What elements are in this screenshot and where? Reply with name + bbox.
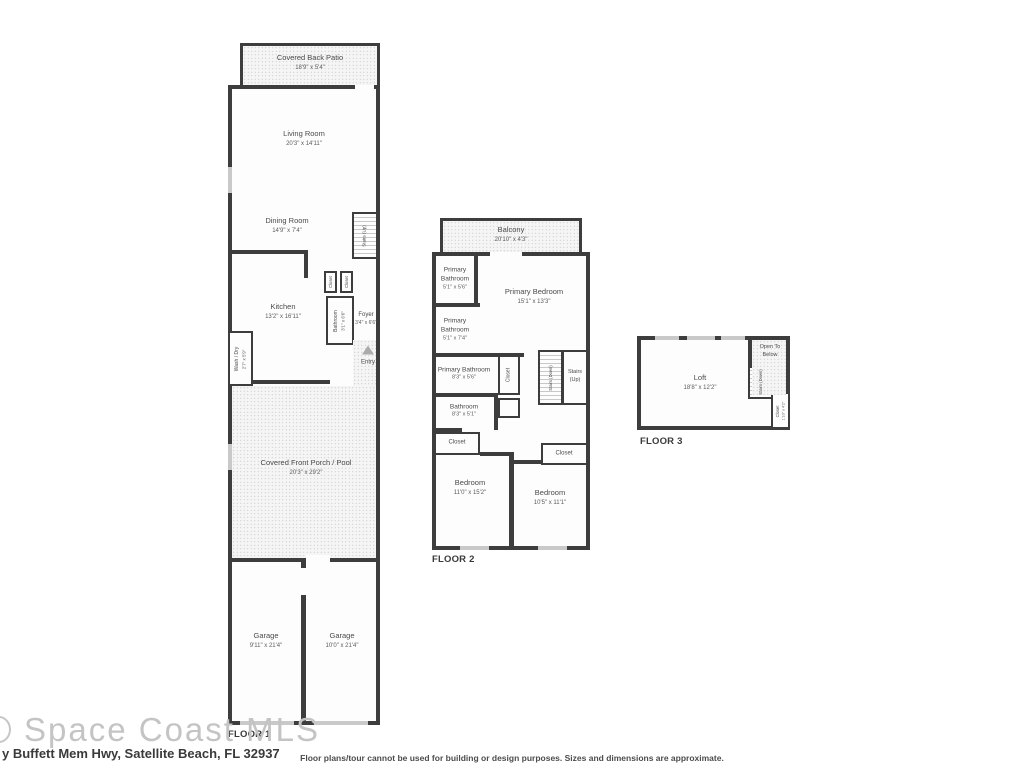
room-dims: 10'0" x 21'4"	[326, 642, 359, 651]
room-name: Garage	[250, 631, 282, 642]
room-name: Garage	[326, 631, 359, 642]
stairs-label: Stairs (Down)	[547, 365, 553, 390]
room-label-bedroom-left: Bedroom 11'0" x 15'2"	[454, 478, 486, 498]
closet: Closet	[498, 355, 520, 395]
room-dims: 14'9" x 7'4"	[265, 227, 308, 236]
room-dims: 13'2" x 16'11"	[265, 313, 301, 322]
room-label-covered-back-patio: Covered Back Patio 18'9" x 5'4"	[277, 53, 343, 73]
room-dims: 15'1" x 13'3"	[505, 298, 563, 307]
room-label-foyer: Foyer 3'4" x 6'6"	[355, 311, 377, 327]
room-label-primary-bathroom-a: Primary Bathroom 5'1" x 5'6"	[432, 266, 478, 293]
wall	[514, 460, 542, 464]
room-label-wash-dry: Wash / Dry 2'7" x 5'9"	[234, 346, 248, 371]
room-name: Loft	[684, 373, 717, 384]
door-opening	[306, 555, 330, 565]
room-dims: 8'3" x 5'1"	[450, 412, 478, 420]
garage-door-opening	[314, 721, 368, 725]
room-label-bathroom: Bathroom 8'3" x 5'1"	[450, 402, 478, 419]
room-label-primary-bathroom-c: Primary Bathroom 8'3" x 5'6"	[438, 365, 490, 382]
room-wash-dry: Wash / Dry 2'7" x 5'9"	[228, 331, 253, 386]
window-opening	[460, 546, 489, 550]
window-opening	[228, 444, 232, 470]
disclaimer-text: Floor plans/tour cannot be used for buil…	[0, 753, 1024, 763]
room-name: Bedroom	[534, 488, 566, 499]
entry-label: Entry	[361, 359, 375, 368]
room-name: Bathroom	[450, 402, 478, 411]
wall	[432, 353, 524, 357]
hall-nook	[498, 398, 520, 418]
floor2-tag: FLOOR 2	[432, 554, 475, 565]
closet-label: Closet	[343, 276, 349, 288]
room-name: Kitchen	[265, 302, 301, 313]
window-opening	[538, 546, 567, 550]
room-label-dining-room: Dining Room 14'9" x 7'4"	[265, 216, 308, 236]
room-name: Bedroom	[454, 478, 486, 489]
room-name: Primary Bathroom	[432, 317, 478, 336]
window-opening	[228, 167, 232, 193]
room-name: Primary Bedroom	[505, 287, 563, 298]
room-label-loft: Loft 18'8" x 12'2"	[684, 373, 717, 393]
room-dims: 11'0" x 15'2"	[454, 489, 486, 498]
room-label-bathroom: Bathroom 3'1" x 6'6"	[333, 310, 347, 332]
room-dims: 20'3" x 14'11"	[283, 140, 325, 149]
closet: Closet 1'10" x 4'2"	[771, 392, 790, 429]
wall	[432, 393, 498, 397]
room-dims: 3'4" x 6'6"	[355, 320, 377, 327]
window-opening	[687, 336, 715, 340]
room-dims: 20'3" x 29'2"	[261, 469, 352, 478]
wall	[509, 452, 514, 550]
room-name: Living Room	[283, 129, 325, 140]
closet-label: Closet	[448, 439, 465, 448]
room-name: Balcony	[495, 225, 528, 236]
room-label-primary-bedroom: Primary Bedroom 15'1" x 13'3"	[505, 287, 563, 307]
wall	[432, 303, 480, 307]
closet-label: Closet	[555, 450, 572, 459]
room-label-covered-front-porch: Covered Front Porch / Pool 20'3" x 29'2"	[261, 458, 352, 478]
room-dims: 18'8" x 12'2"	[684, 384, 717, 393]
wall	[304, 250, 308, 278]
stairs-label: Stairs (Down)	[757, 369, 763, 394]
wall	[748, 340, 752, 368]
closet: Closet	[324, 271, 337, 293]
window-opening	[721, 336, 745, 340]
door-opening	[301, 568, 306, 595]
stairs-label: Stairs (Up)	[362, 225, 369, 247]
room-dims: 5'1" x 5'6"	[432, 284, 478, 292]
window-opening	[655, 336, 679, 340]
room-label-kitchen: Kitchen 13'2" x 16'11"	[265, 302, 301, 322]
room-bathroom: Bathroom 3'1" x 6'6"	[326, 296, 354, 345]
room-label-living-room: Living Room 20'3" x 14'11"	[283, 129, 325, 149]
stairs-up: Stairs (Up)	[352, 212, 378, 259]
closet: Closet	[340, 271, 353, 293]
door-opening	[490, 252, 522, 256]
watermark-logo-fragment	[0, 716, 11, 743]
closet-label: Closet	[327, 276, 333, 288]
room-name: Covered Back Patio	[277, 53, 343, 64]
wall	[494, 393, 498, 430]
stairs-block: Stairs (Down) Stairs (Up)	[538, 350, 588, 405]
floor3-tag: FLOOR 3	[640, 436, 683, 447]
watermark-text: Space Coast MLS	[24, 711, 320, 749]
wall	[432, 428, 462, 432]
wall	[228, 250, 308, 254]
room-name: Foyer	[355, 311, 377, 320]
entry-arrow-icon	[362, 346, 374, 355]
room-label-balcony: Balcony 20'10" x 4'3"	[495, 225, 528, 245]
room-label-primary-bathroom-b: Primary Bathroom 5'1" x 7'4"	[432, 317, 478, 344]
stairs-down: Stairs (Down)	[540, 352, 561, 403]
room-name: Primary Bathroom	[438, 365, 490, 374]
room-name: Covered Front Porch / Pool	[261, 458, 352, 469]
room-name: Primary Bathroom	[432, 266, 478, 285]
room-label-garage-left: Garage 9'11" x 21'4"	[250, 631, 282, 651]
room-dims: 20'10" x 4'3"	[495, 236, 528, 245]
stairs-label: Stairs (Up)	[564, 369, 586, 385]
room-dims: 9'11" x 21'4"	[250, 642, 282, 651]
closet-label: Closet 1'10" x 4'2"	[775, 401, 787, 420]
room-label-bedroom-right: Bedroom 10'5" x 11'1"	[534, 488, 566, 508]
room-dims: 8'3" x 5'6"	[438, 375, 490, 383]
closet-label: Closet	[505, 368, 512, 382]
room-dims: 18'9" x 5'4"	[277, 64, 343, 73]
door-opening	[355, 85, 374, 89]
open-to-below-label: Open To Below	[753, 344, 787, 360]
room-dims: 10'5" x 11'1"	[534, 499, 566, 508]
stairs-up: Stairs (Up)	[564, 352, 586, 403]
wall	[252, 380, 330, 384]
room-dims: 5'1" x 7'4"	[432, 335, 478, 343]
room-label-garage-right: Garage 10'0" x 21'4"	[326, 631, 359, 651]
floorplan-image: Covered Back Patio 18'9" x 5'4" Living R…	[0, 0, 1024, 768]
room-name: Dining Room	[265, 216, 308, 227]
